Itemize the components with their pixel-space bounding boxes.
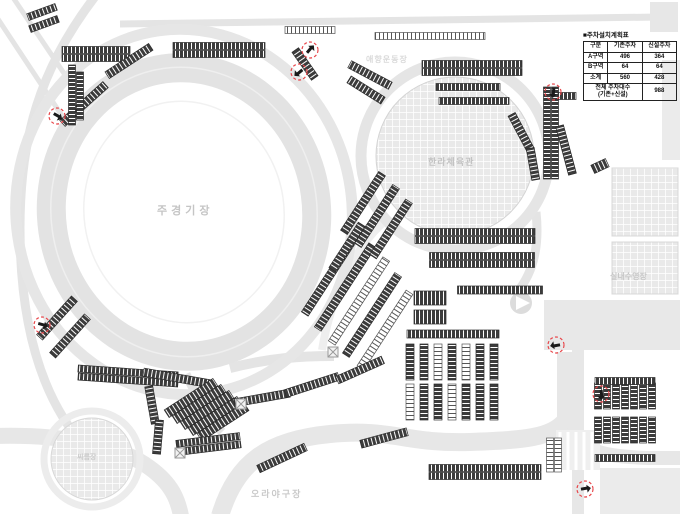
parking-row [649, 383, 656, 409]
total-label-line2: (기존+신설) [584, 92, 642, 99]
parking-row [436, 84, 500, 91]
parking-row [173, 51, 265, 58]
total-value: 988 [642, 84, 676, 101]
parking-row [595, 417, 602, 443]
parking-row [547, 438, 554, 472]
parking-row [173, 43, 265, 50]
gymnasium-label: 한라체육관 [428, 155, 474, 168]
parking-row [622, 417, 629, 443]
parking-row [415, 229, 535, 236]
parking-row [490, 344, 498, 380]
table-row: 소계 560 428 [584, 73, 677, 84]
parking-row [462, 344, 470, 380]
indoor-pool-label: 실내수영장 [610, 271, 647, 282]
subtotal-label: 소계 [584, 73, 608, 84]
parking-row [434, 344, 442, 380]
parking-row [422, 61, 522, 68]
parking-row [555, 438, 562, 472]
parking-row [622, 383, 629, 409]
parking-row [476, 344, 484, 380]
parking-row [613, 417, 620, 443]
table-header-row: 구분 기존주차 신설주차 [584, 42, 677, 53]
parking-row [422, 69, 522, 76]
parking-row [640, 417, 647, 443]
parking-row [434, 384, 442, 420]
zone-a-label: A구역 [584, 52, 608, 63]
parking-row [406, 344, 414, 380]
zone-b-label: B구역 [584, 63, 608, 74]
site-plan-canvas: 주경기장 한라체육관 애향운동장 실내수영장 오라야구장 씨름장 ■주차설치계획… [0, 0, 680, 514]
parking-row [414, 310, 446, 324]
parking-row [458, 286, 543, 294]
parking-row [640, 383, 647, 409]
total-label: 전체 주차대수 (기존+신설) [584, 84, 643, 101]
parking-row [448, 384, 456, 420]
ssireum-label: 씨름장 [77, 452, 96, 462]
subtotal-new: 428 [642, 73, 676, 84]
header-existing: 기존주차 [608, 42, 642, 53]
parking-row [439, 98, 509, 105]
parking-row [69, 65, 76, 125]
zone-a-existing: 496 [608, 52, 642, 63]
table-row: B구역 64 64 [584, 63, 677, 74]
aux-field-label: 애향운동장 [366, 54, 408, 65]
parking-row [613, 383, 620, 409]
parking-row [284, 373, 340, 398]
parking-row [153, 420, 164, 455]
parking-row [355, 184, 400, 247]
table-total-row: 전체 주차대수 (기존+신설) 988 [584, 84, 677, 101]
parking-row [406, 384, 414, 420]
parking-row [420, 384, 428, 420]
parking-row [336, 356, 385, 384]
parking-row [420, 344, 428, 380]
parking-row [429, 473, 541, 480]
parking-row [415, 237, 535, 244]
parking-plan-table: ■주차설치계획표 구분 기존주차 신설주차 A구역 496 364 B구역 64… [583, 29, 677, 101]
parking-row [544, 87, 551, 179]
parking-row [430, 261, 535, 268]
parking-row [429, 465, 541, 472]
baseball-field-label: 오라야구장 [251, 487, 302, 500]
table-row: A구역 496 364 [584, 52, 677, 63]
site-plan-svg [0, 0, 680, 514]
parking-row [595, 455, 655, 462]
subtotal-existing: 560 [608, 73, 642, 84]
zone-a-new: 364 [642, 52, 676, 63]
header-zone: 구분 [584, 42, 608, 53]
roundabout-icon [510, 292, 532, 314]
zone-b-new: 64 [642, 63, 676, 74]
parking-row [407, 330, 499, 338]
crossing-marker-icon [236, 399, 246, 409]
parking-row [448, 344, 456, 380]
parking-row [285, 27, 335, 34]
parking-plan-table-title: ■주차설치계획표 [583, 29, 677, 39]
crossing-marker-icon [328, 347, 338, 357]
main-stadium-label: 주경기장 [157, 202, 213, 218]
parking-row [375, 33, 485, 40]
parking-row [62, 47, 130, 54]
parking-row [430, 253, 535, 260]
zone-b-existing: 64 [608, 63, 642, 74]
parking-row [649, 417, 656, 443]
parking-row [604, 417, 611, 443]
parking-row [62, 55, 130, 62]
parking-row [631, 383, 638, 409]
parking-row [631, 417, 638, 443]
parking-row [462, 384, 470, 420]
parking-row [490, 384, 498, 420]
parking-row [591, 159, 609, 174]
parking-row [414, 291, 446, 305]
parking-row [77, 72, 84, 120]
crossing-marker-icon [175, 448, 185, 458]
parking-row [595, 378, 655, 385]
header-new: 신설주차 [642, 42, 676, 53]
parking-row [476, 384, 484, 420]
